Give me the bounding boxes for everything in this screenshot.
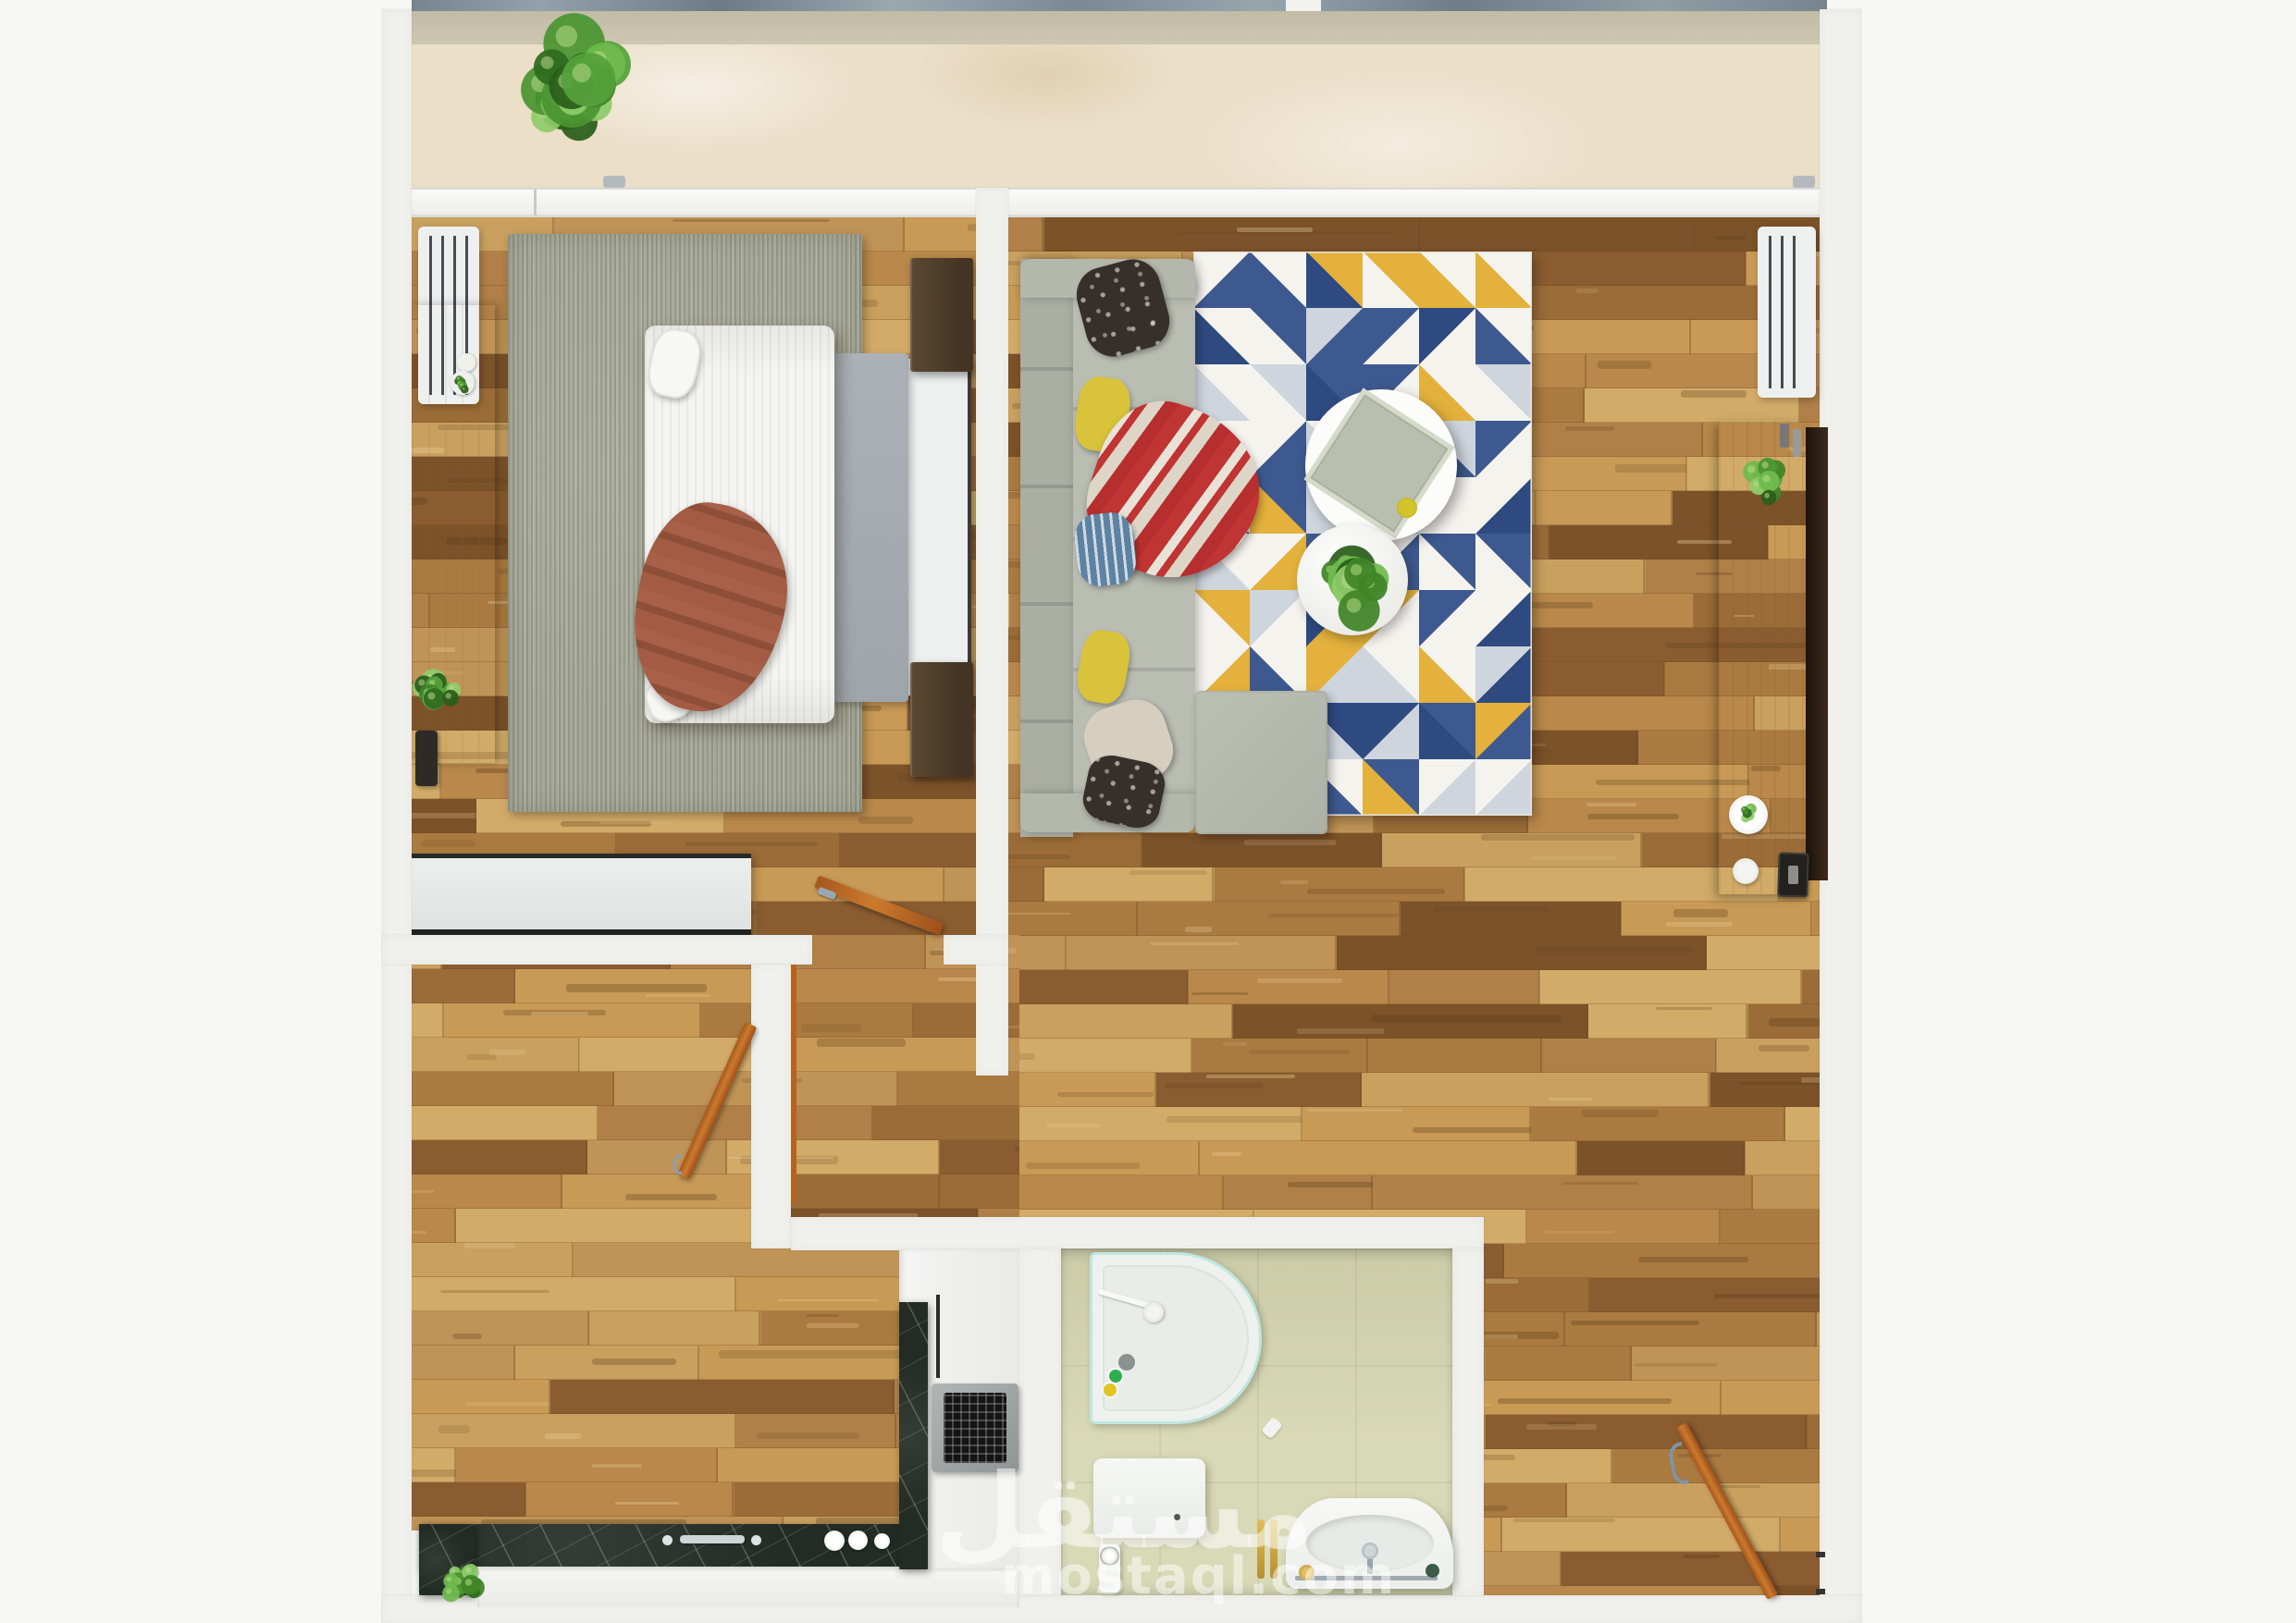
exterior-stone-ledge <box>412 0 1827 11</box>
shower-drain-icon <box>1118 1354 1135 1371</box>
window-handle-icon <box>603 176 625 188</box>
window-frame-line <box>534 190 537 215</box>
counter-jar-icon <box>824 1531 845 1551</box>
living-radiator-icon <box>1758 227 1816 398</box>
desk-succulent-icon <box>452 373 473 393</box>
nightstand <box>910 662 973 777</box>
shower-tray-inner <box>1103 1265 1249 1411</box>
console-plant-icon <box>1743 455 1795 507</box>
oven-handle <box>936 1295 940 1378</box>
console-bottle-icon <box>1793 429 1801 457</box>
faucet-knob-icon <box>662 1535 673 1545</box>
wall-bathroom-right <box>1452 1248 1484 1595</box>
wall-bedroom-south <box>944 935 1008 965</box>
wall-left-outer <box>382 9 412 1623</box>
shampoo-bottle-yellow-icon <box>1104 1383 1117 1396</box>
desk-tray <box>457 353 475 372</box>
console-tray <box>1733 858 1759 884</box>
tray-cup-icon <box>1397 498 1417 518</box>
kitchen-door-frame-edge <box>791 965 796 1202</box>
faucet-knob-icon <box>751 1535 761 1545</box>
kitchen-sink-faucet <box>680 1535 745 1543</box>
bed-blanket <box>831 353 908 702</box>
living-sofa-back <box>1020 259 1073 837</box>
console-bottle-icon <box>1780 424 1789 448</box>
door-handle-icon <box>673 1154 682 1174</box>
sofa-pillow <box>1072 510 1139 588</box>
watermark-latin: mostaql.com <box>1001 1546 1371 1606</box>
door-strike-plate <box>1816 1589 1825 1594</box>
balcony-plant-icon <box>511 17 640 155</box>
ledge-gap <box>1286 0 1321 11</box>
ottoman <box>1195 691 1327 834</box>
window-sill <box>1008 188 1820 217</box>
wall-kitchen <box>751 965 791 1248</box>
tv-wall-panel <box>1806 427 1828 880</box>
window-sill <box>412 188 976 217</box>
console-speaker-glyph <box>1788 866 1798 884</box>
kitchen-counter-marble-side <box>899 1302 928 1569</box>
shampoo-bottle-green-icon <box>1109 1370 1122 1383</box>
table-plant-icon <box>1300 529 1401 631</box>
nightstand <box>910 258 973 372</box>
wall-hall-bathroom <box>791 1217 1484 1250</box>
window-handle-icon <box>1793 176 1815 188</box>
floor-bag <box>415 731 438 786</box>
wall-bedroom-south <box>382 935 812 965</box>
door-strike-plate <box>1816 1552 1825 1557</box>
counter-plant-icon <box>437 1559 485 1607</box>
bed-frame <box>907 359 971 695</box>
shower-head-icon <box>1143 1302 1164 1322</box>
floor-plan-render: مستقل mostaql.com <box>0 0 2296 1623</box>
bath-accessory-icon <box>1426 1564 1439 1578</box>
bedroom-plant-icon <box>414 658 469 714</box>
console-succulent-icon <box>1735 801 1761 827</box>
counter-jar-icon <box>874 1533 890 1549</box>
counter-jar-icon <box>848 1531 868 1550</box>
kitchen-cabinet-front <box>477 1567 1019 1607</box>
dresser <box>412 854 751 935</box>
